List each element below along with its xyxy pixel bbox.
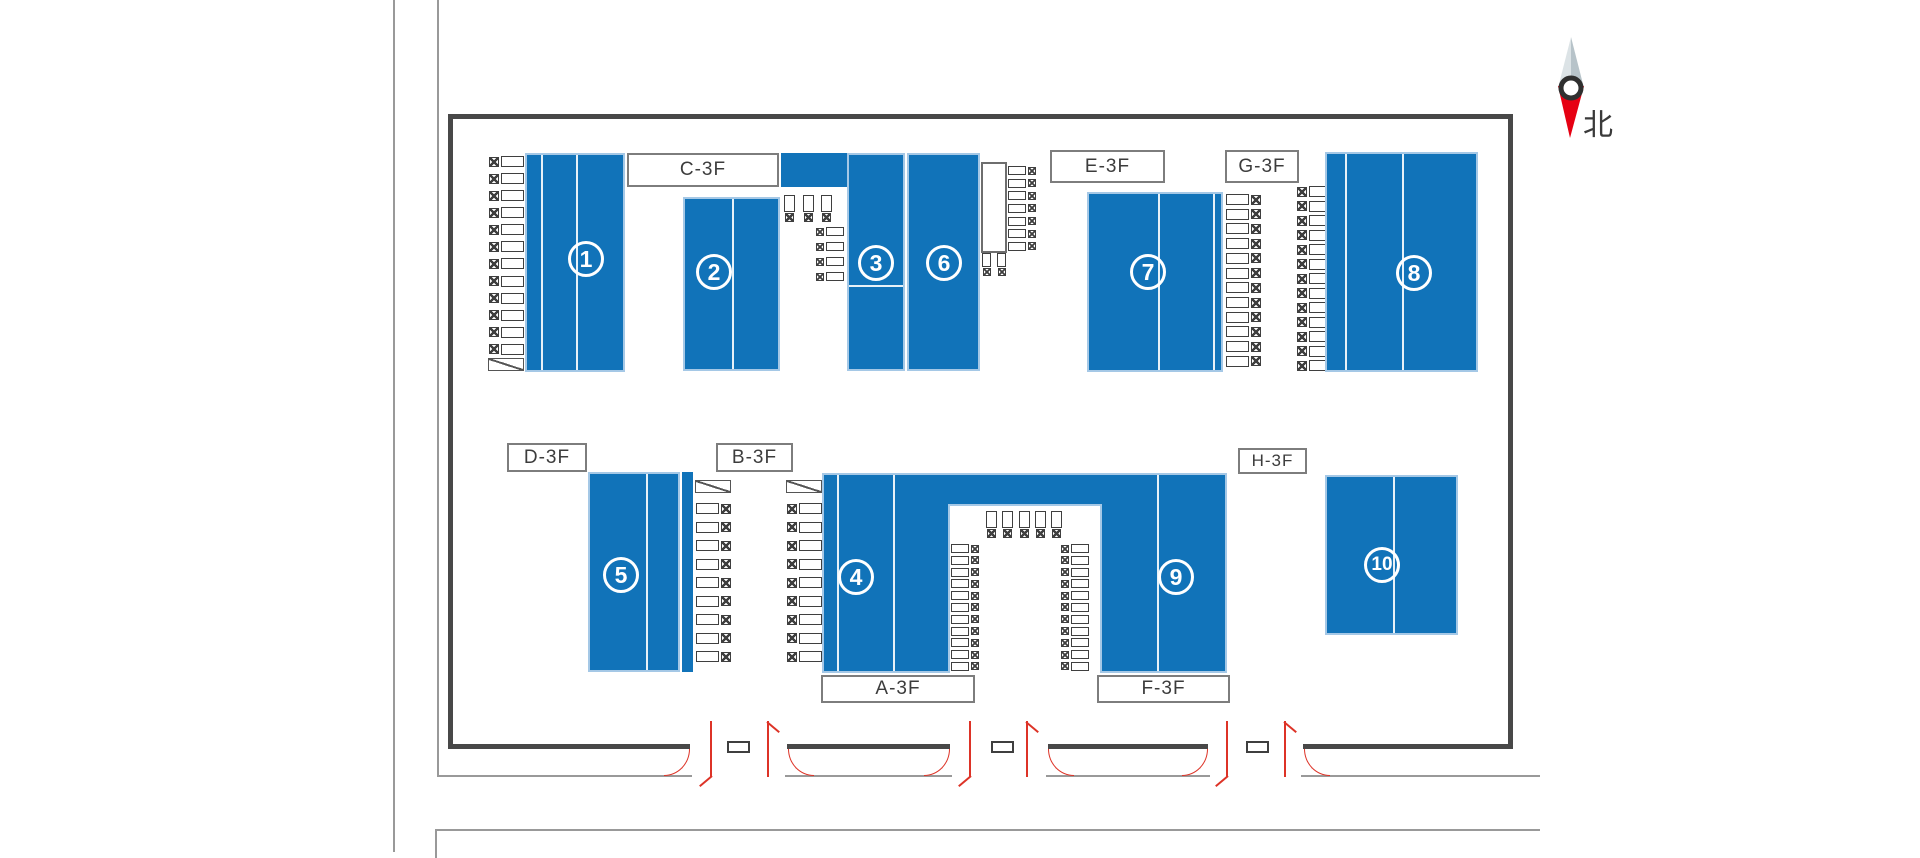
cart-body (1008, 191, 1026, 200)
cart-head (1061, 662, 1069, 670)
cart-head (971, 651, 979, 659)
cart-icon (951, 650, 984, 659)
cart-head (1003, 529, 1012, 538)
cart-body (951, 638, 969, 647)
cart-icon (951, 591, 984, 600)
cart-body (1226, 268, 1249, 279)
cart-head (1297, 361, 1307, 371)
cart-head (1251, 224, 1261, 234)
cart-head (1061, 603, 1069, 611)
cart-icon (997, 253, 1006, 277)
cart-icon (489, 258, 525, 269)
cart-head (721, 633, 731, 643)
cart-body (951, 627, 969, 636)
cart-icon (696, 614, 731, 625)
cart-icon (489, 156, 525, 167)
cart-icon (696, 577, 731, 588)
cart-icon (1226, 312, 1261, 323)
cart-body (501, 156, 524, 167)
cart-icon (489, 327, 525, 338)
cart-icon (489, 207, 525, 218)
cart-head (1251, 283, 1261, 293)
cart-body (501, 207, 524, 218)
cart-body (1071, 627, 1089, 636)
cart-head (787, 559, 797, 569)
cart-column (951, 544, 984, 671)
cart-head (1028, 217, 1036, 225)
cart-icon (696, 559, 731, 570)
site-boundary-line (437, 0, 439, 776)
cart-icon (951, 638, 984, 647)
cart-icon (1008, 191, 1036, 200)
cart-icon (787, 540, 822, 551)
cart-icon (1061, 615, 1094, 624)
cart-icon (816, 242, 844, 251)
area-label-c3f: C-3F (627, 153, 779, 187)
cart-icon (1061, 568, 1094, 577)
cart-icon (986, 511, 997, 538)
cart-body (1226, 238, 1249, 249)
cart-body (1226, 326, 1249, 337)
cart-head (971, 545, 979, 553)
cart-head (787, 522, 797, 532)
cart-head (983, 268, 991, 276)
cart-icon (951, 544, 984, 553)
block-number-text: 7 (1142, 259, 1155, 286)
cart-icon (787, 633, 822, 644)
cart-head (1061, 651, 1069, 659)
block-divider-line (541, 155, 543, 370)
cart-body (501, 190, 524, 201)
cart-body (982, 253, 991, 267)
block-number-5: 5 (603, 557, 639, 593)
ramp-hatch-box (786, 480, 822, 493)
cart-body (1008, 179, 1026, 188)
cart-body (826, 242, 844, 251)
building-wall-top (448, 114, 1513, 119)
cart-head (1251, 342, 1261, 352)
cart-body (696, 596, 719, 607)
cart-body (1008, 229, 1026, 238)
cart-body (696, 559, 719, 570)
cart-body (803, 195, 814, 212)
road-edge-line (435, 829, 1540, 831)
cart-body (1051, 511, 1062, 528)
cart-head (489, 276, 499, 286)
cart-body (799, 596, 822, 607)
cart-icon (1008, 217, 1036, 226)
cart-icon (1061, 662, 1094, 671)
cart-icon (696, 651, 731, 662)
area-label-text: E-3F (1085, 156, 1130, 178)
cart-head (822, 213, 831, 222)
building-wall-left (448, 114, 453, 749)
block-number-1: 1 (568, 241, 604, 277)
cart-body (1226, 223, 1249, 234)
cart-head (971, 603, 979, 611)
service-area-box (981, 162, 1007, 253)
entrance-arrow-in (710, 721, 712, 777)
cart-icon (1061, 650, 1094, 659)
area-label-h3f: H-3F (1238, 448, 1307, 474)
cart-head (489, 191, 499, 201)
cart-head (1297, 346, 1307, 356)
building-wall-bottom-segment (448, 744, 690, 749)
block-number-7: 7 (1130, 254, 1166, 290)
cart-body (799, 651, 822, 662)
cart-head (1297, 317, 1307, 327)
entrance-pillar (1246, 741, 1269, 753)
cart-body (799, 503, 822, 514)
cart-icon (821, 195, 832, 222)
cart-icon (1008, 242, 1036, 251)
cart-icon (816, 257, 844, 266)
cart-body (826, 227, 844, 236)
block-number-text: 5 (615, 562, 628, 589)
cart-body (696, 503, 719, 514)
cart-icon (951, 615, 984, 624)
cart-body (951, 579, 969, 588)
cart-body (1071, 615, 1089, 624)
cart-head (787, 596, 797, 606)
cart-head (1251, 312, 1261, 322)
cart-body (1008, 204, 1026, 213)
cart-body (1226, 209, 1249, 220)
entrance-arrow-out (767, 721, 769, 777)
cart-head (721, 504, 731, 514)
cart-body (951, 556, 969, 565)
cart-icon (489, 190, 525, 201)
cart-body (501, 173, 524, 184)
cart-column (1008, 166, 1036, 251)
site-boundary-line (393, 0, 395, 852)
cart-icon (787, 596, 822, 607)
cart-row (982, 253, 1006, 277)
cart-icon (787, 522, 822, 533)
cart-head (489, 293, 499, 303)
area-label-text: D-3F (524, 447, 570, 469)
block-number-2: 2 (696, 254, 732, 290)
cart-head (785, 213, 794, 222)
cart-body (799, 559, 822, 570)
cart-icon (1226, 326, 1261, 337)
entrance-arrow-in (1226, 721, 1228, 777)
cart-head (489, 259, 499, 269)
block-number-text: 4 (850, 564, 863, 591)
area-label-b3f: B-3F (716, 443, 793, 472)
cart-icon (696, 633, 731, 644)
floor-map-canvas: 1 C-3F 2 3 6 E-3F 7 G-3F 8 D-3F (0, 0, 1920, 858)
cart-icon (951, 556, 984, 565)
cart-head (1251, 356, 1261, 366)
cart-head (1251, 253, 1261, 263)
cart-icon (816, 272, 844, 281)
cart-column (489, 156, 525, 355)
cart-body (696, 651, 719, 662)
cart-body (821, 195, 832, 212)
cart-icon (1008, 204, 1036, 213)
cart-body (1071, 544, 1089, 553)
cart-icon (696, 540, 731, 551)
cart-icon (951, 603, 984, 612)
cart-body (951, 650, 969, 659)
cart-head (987, 529, 996, 538)
door-swing-arc (664, 749, 690, 776)
cart-head (489, 327, 499, 337)
cart-icon (1019, 511, 1030, 538)
cart-head (1036, 529, 1045, 538)
cart-head (1028, 204, 1036, 212)
cart-body (696, 577, 719, 588)
cart-body (501, 293, 524, 304)
cart-body (784, 195, 795, 212)
cart-body (1226, 282, 1249, 293)
cart-head (1028, 192, 1036, 200)
entrance-pillar (991, 741, 1014, 753)
cart-icon (1226, 253, 1261, 264)
cart-body (799, 540, 822, 551)
cart-head (1061, 627, 1069, 635)
cart-icon (696, 596, 731, 607)
area-label-text: B-3F (732, 447, 777, 469)
area-label-a3f: A-3F (821, 675, 975, 703)
block-number-text: 8 (1408, 260, 1421, 287)
door-chord-line (1301, 775, 1540, 777)
cart-head (971, 580, 979, 588)
cart-head (1061, 580, 1069, 588)
area-label-text: A-3F (875, 678, 920, 700)
cart-body (951, 568, 969, 577)
cart-body (1008, 242, 1026, 251)
entrance-pillar (727, 741, 750, 753)
cart-head (489, 157, 499, 167)
door-swing-arc (1182, 749, 1208, 776)
building-wall-bottom-segment (1303, 744, 1513, 749)
cart-head (721, 596, 731, 606)
cart-icon (489, 241, 525, 252)
cart-head (489, 208, 499, 218)
cart-head (1297, 303, 1307, 313)
cart-icon (489, 276, 525, 287)
cart-head (721, 652, 731, 662)
cart-icon (951, 662, 984, 671)
cart-icon (1061, 544, 1094, 553)
cart-body (951, 591, 969, 600)
cart-body (696, 614, 719, 625)
cart-head (721, 559, 731, 569)
block-number-8: 8 (1396, 255, 1432, 291)
cart-head (1251, 239, 1261, 249)
road-edge-line (435, 829, 437, 858)
cart-head (489, 174, 499, 184)
cart-icon (1226, 194, 1261, 205)
cart-head (787, 633, 797, 643)
cart-icon (1226, 341, 1261, 352)
cart-body (951, 544, 969, 553)
cart-head (1061, 639, 1069, 647)
door-chord-line (437, 775, 692, 777)
cart-body (1071, 579, 1089, 588)
cart-head (816, 258, 824, 266)
cart-head (787, 578, 797, 588)
cart-icon (803, 195, 814, 222)
cart-head (971, 556, 979, 564)
cart-icon (489, 293, 525, 304)
cart-body (951, 603, 969, 612)
cart-icon (1008, 179, 1036, 188)
cart-head (971, 639, 979, 647)
cart-head (1251, 298, 1261, 308)
cart-icon (1061, 591, 1094, 600)
cart-icon (1061, 627, 1094, 636)
cart-head (721, 615, 731, 625)
area-label-g3f: G-3F (1225, 150, 1299, 183)
cart-head (1028, 242, 1036, 250)
cart-icon (982, 253, 991, 277)
cart-head (1297, 230, 1307, 240)
cart-head (1028, 167, 1036, 175)
cart-body (799, 633, 822, 644)
area-label-e3f: E-3F (1050, 150, 1165, 183)
cart-head (998, 268, 1006, 276)
cart-column (1226, 194, 1261, 367)
block-number-text: 2 (708, 259, 721, 286)
cart-head (1061, 592, 1069, 600)
cart-icon (1008, 166, 1036, 175)
cart-icon (1226, 268, 1261, 279)
cart-body (826, 272, 844, 281)
storage-block-2 (683, 197, 780, 371)
cart-body (501, 327, 524, 338)
cart-icon (787, 614, 822, 625)
cart-head (1061, 556, 1069, 564)
area-label-text: F-3F (1141, 678, 1185, 700)
cart-icon (489, 344, 525, 355)
cart-icon (787, 559, 822, 570)
cart-head (787, 652, 797, 662)
cart-icon (489, 173, 525, 184)
cart-body (501, 344, 524, 355)
cart-head (787, 504, 797, 514)
cart-head (1061, 545, 1069, 553)
cart-icon (787, 651, 822, 662)
block-divider-line (893, 475, 895, 671)
cart-head (1052, 529, 1061, 538)
entrance-arrow-out (1026, 721, 1028, 777)
cart-head (1297, 245, 1307, 255)
cart-body (1035, 511, 1046, 528)
cart-icon (1008, 229, 1036, 238)
block-divider-line (849, 285, 903, 287)
cart-head (816, 228, 824, 236)
cart-icon (1061, 603, 1094, 612)
cart-head (489, 225, 499, 235)
block-number-10: 10 (1364, 547, 1400, 583)
cart-head (1297, 288, 1307, 298)
cart-body (1226, 312, 1249, 323)
cart-icon (1226, 209, 1261, 220)
cart-body (1071, 556, 1089, 565)
cart-head (787, 615, 797, 625)
cart-column (1061, 544, 1094, 671)
door-swing-arc (1048, 749, 1074, 776)
cart-body (696, 522, 719, 533)
cart-head (1028, 230, 1036, 238)
cart-head (721, 541, 731, 551)
cart-column (787, 503, 822, 662)
cart-icon (1226, 223, 1261, 234)
cart-body (1071, 603, 1089, 612)
north-label: 北 (1583, 100, 1613, 144)
ramp-hatch-box (488, 358, 524, 371)
cart-head (1297, 187, 1307, 197)
cart-body (799, 577, 822, 588)
cart-body (799, 522, 822, 533)
cart-body (1071, 568, 1089, 577)
cart-icon (951, 627, 984, 636)
cart-body (1226, 341, 1249, 352)
cart-head (489, 242, 499, 252)
entrance-arrow-in (969, 721, 971, 777)
area-label-text: C-3F (680, 159, 726, 181)
cart-icon (1061, 579, 1094, 588)
cart-icon (1226, 356, 1261, 367)
cart-head (971, 627, 979, 635)
cart-head (971, 615, 979, 623)
cart-head (971, 592, 979, 600)
block-number-text: 1 (580, 246, 593, 273)
block-number-3: 3 (858, 245, 894, 281)
cart-column (816, 227, 844, 281)
block-number-6: 6 (926, 245, 962, 281)
storage-block-5-strip (682, 472, 693, 672)
cart-body (501, 258, 524, 269)
door-swing-arc (1304, 749, 1330, 776)
cart-icon (1035, 511, 1046, 538)
cart-head (1061, 568, 1069, 576)
cart-head (971, 662, 979, 670)
cart-head (816, 273, 824, 281)
cart-body (1019, 511, 1030, 528)
cart-icon (951, 568, 984, 577)
cart-icon (787, 577, 822, 588)
cart-body (1226, 253, 1249, 264)
door-swing-arc (924, 749, 950, 776)
cart-head (1061, 615, 1069, 623)
cart-body (1071, 638, 1089, 647)
cart-body (826, 257, 844, 266)
cart-icon (951, 579, 984, 588)
ramp-hatch-box (695, 480, 731, 493)
cart-head (1297, 332, 1307, 342)
cart-head (1251, 195, 1261, 205)
cart-head (1297, 274, 1307, 284)
cart-body (1226, 297, 1249, 308)
cart-head (1251, 327, 1261, 337)
cart-body (951, 662, 969, 671)
cart-body (501, 310, 524, 321)
block-divider-line (1345, 154, 1347, 370)
area-label-f3f: F-3F (1097, 675, 1230, 703)
cart-body (1071, 591, 1089, 600)
cart-icon (489, 310, 525, 321)
cart-head (489, 310, 499, 320)
cart-body (696, 540, 719, 551)
cart-head (1028, 179, 1036, 187)
cart-head (721, 578, 731, 588)
entrance-arrow-out (1284, 721, 1286, 777)
area-label-d3f: D-3F (507, 443, 587, 472)
